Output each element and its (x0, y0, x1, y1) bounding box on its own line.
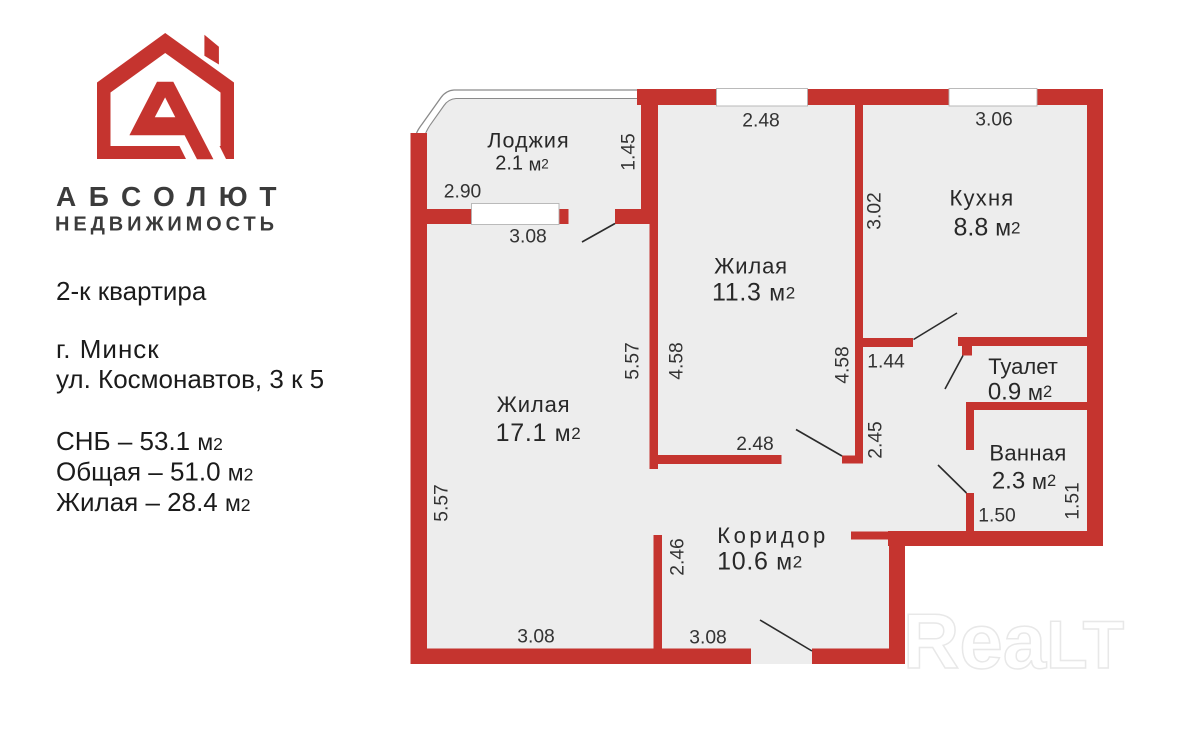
svg-text:АБСОЛЮТ: АБСОЛЮТ (56, 181, 289, 212)
svg-text:Жилая – 28.4 м2: Жилая – 28.4 м2 (56, 487, 251, 517)
svg-text:8.8 м2: 8.8 м2 (954, 214, 1021, 242)
svg-text:Туалет: Туалет (988, 354, 1058, 379)
svg-text:2.48: 2.48 (736, 434, 774, 455)
svg-text:Жилая: Жилая (497, 392, 571, 417)
svg-text:4.58: 4.58 (833, 346, 854, 384)
svg-text:ReaLT: ReaLT (903, 597, 1124, 685)
svg-text:3.08: 3.08 (509, 227, 547, 248)
svg-text:3.06: 3.06 (975, 110, 1013, 131)
svg-text:2.46: 2.46 (668, 538, 689, 576)
svg-text:2.90: 2.90 (444, 182, 482, 203)
svg-text:1.51: 1.51 (1063, 482, 1084, 520)
svg-text:1.44: 1.44 (867, 352, 905, 373)
svg-text:1.45: 1.45 (619, 133, 640, 171)
svg-text:2.1 м2: 2.1 м2 (495, 153, 549, 175)
svg-text:0.9 м2: 0.9 м2 (988, 379, 1052, 406)
svg-text:Коридор: Коридор (717, 523, 828, 548)
svg-text:2.48: 2.48 (742, 111, 780, 132)
svg-text:17.1 м2: 17.1 м2 (496, 419, 582, 447)
svg-text:5.57: 5.57 (623, 342, 644, 380)
svg-text:Лоджия: Лоджия (487, 129, 569, 153)
svg-text:2-к квартира: 2-к квартира (56, 276, 207, 306)
svg-text:10.6 м2: 10.6 м2 (717, 548, 803, 576)
svg-text:СНБ – 53.1 м2: СНБ – 53.1 м2 (56, 426, 223, 456)
svg-text:г. Минск: г. Минск (56, 334, 160, 364)
svg-text:ул. Космонавтов, 3 к 5: ул. Космонавтов, 3 к 5 (56, 364, 324, 394)
svg-text:1.50: 1.50 (978, 506, 1016, 527)
svg-text:Жилая: Жилая (714, 254, 788, 279)
svg-text:2.45: 2.45 (866, 421, 887, 459)
svg-text:3.08: 3.08 (689, 628, 727, 649)
svg-text:НЕДВИЖИМОСТЬ: НЕДВИЖИМОСТЬ (55, 214, 278, 236)
svg-text:3.08: 3.08 (517, 627, 555, 648)
svg-text:11.3 м2: 11.3 м2 (712, 279, 796, 307)
svg-text:2.3 м2: 2.3 м2 (992, 468, 1056, 495)
svg-text:5.57: 5.57 (432, 484, 453, 522)
svg-text:4.58: 4.58 (667, 342, 688, 380)
svg-text:Кухня: Кухня (950, 186, 1015, 211)
svg-text:3.02: 3.02 (865, 192, 886, 230)
svg-text:Общая – 51.0 м2: Общая – 51.0 м2 (56, 457, 253, 487)
svg-text:Ванная: Ванная (989, 441, 1066, 466)
